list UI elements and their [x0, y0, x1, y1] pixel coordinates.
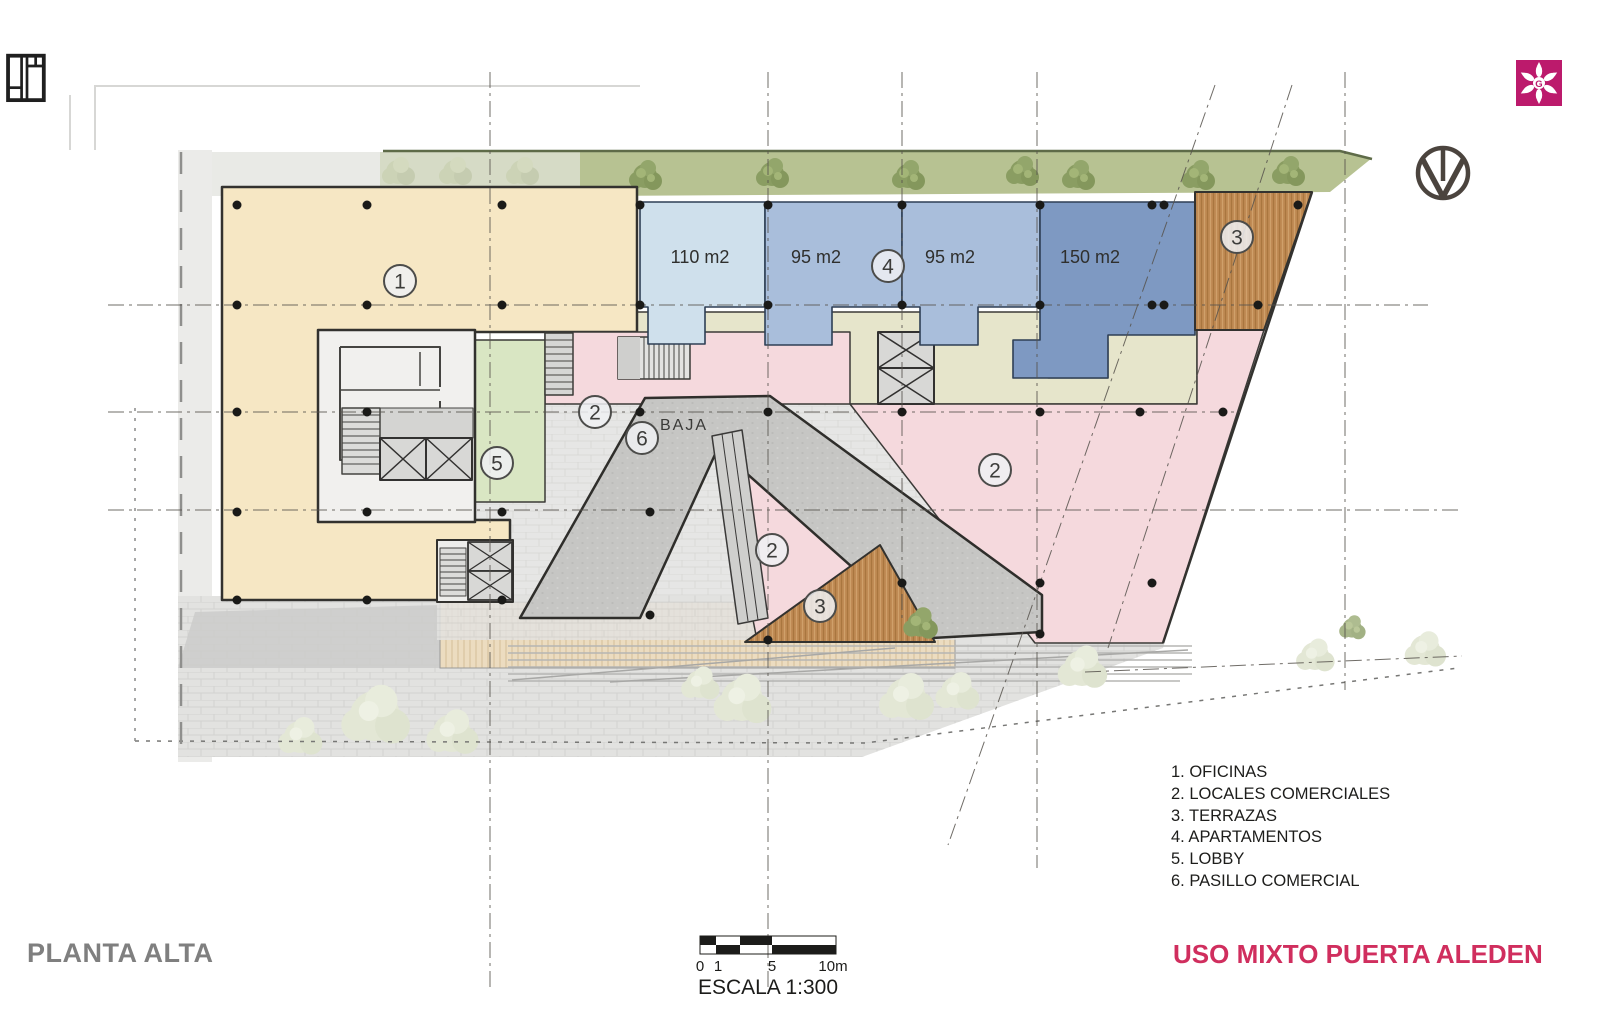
svg-text:1: 1 [394, 271, 406, 294]
marker-locales-right: 2 [979, 454, 1011, 486]
marker-pasillo: 6 [626, 422, 658, 454]
legend-item-apartamentos: 4. APARTAMENTOS [1171, 827, 1390, 849]
svg-text:6: 6 [636, 428, 648, 451]
sheet-title: PLANTA ALTA [27, 938, 213, 969]
legend-item-oficinas: 1. OFICINAS [1171, 762, 1390, 784]
scale-bar: 0 1 5 10m ESCALA 1:300 [685, 926, 865, 1000]
scale-tick-0: 0 [696, 958, 704, 975]
svg-text:3: 3 [814, 596, 826, 619]
svg-text:2: 2 [989, 460, 1001, 483]
unit-area-150: 150 m2 [1060, 247, 1120, 267]
marker-apartamentos: 4 [872, 250, 904, 282]
scale-tick-5: 5 [768, 958, 776, 975]
legend-item-pasillo: 6. PASILLO COMERCIAL [1171, 871, 1390, 893]
legend-item-locales: 2. LOCALES COMERCIALES [1171, 784, 1390, 806]
svg-text:2: 2 [589, 402, 601, 425]
svg-text:2: 2 [766, 540, 778, 563]
marker-locales-mid: 2 [756, 534, 788, 566]
scale-label: ESCALA 1:300 [698, 976, 838, 999]
svg-text:5: 5 [491, 453, 503, 476]
marker-terraza-top: 3 [1221, 221, 1253, 253]
project-title: USO MIXTO PUERTA ALEDEN [1173, 939, 1543, 970]
scale-tick-10: 10m [818, 958, 847, 975]
zone-terraza-top [1195, 192, 1312, 330]
marker-terraza-bottom: 3 [804, 590, 836, 622]
svg-text:4: 4 [882, 256, 894, 279]
unit-area-110: 110 m2 [671, 247, 730, 267]
legend-item-terrazas: 3. TERRAZAS [1171, 806, 1390, 828]
baja-label: BAJA [660, 417, 708, 434]
legend-item-lobby: 5. LOBBY [1171, 849, 1390, 871]
marker-locales-left: 2 [579, 396, 611, 428]
scale-bar-blocks [700, 936, 836, 954]
scale-tick-1: 1 [714, 958, 722, 975]
stair-core-secondary [437, 540, 513, 602]
unit-area-95a: 95 m2 [791, 247, 841, 267]
legend: 1. OFICINAS 2. LOCALES COMERCIALES 3. TE… [1171, 762, 1390, 893]
marker-lobby: 5 [481, 447, 513, 479]
scale-ticks: 0 1 5 10m [696, 958, 848, 975]
unit-area-95b: 95 m2 [925, 247, 975, 267]
marker-oficinas: 1 [384, 265, 416, 297]
svg-text:3: 3 [1231, 227, 1243, 250]
stair-core-main [318, 330, 475, 522]
stair-lobby-side [545, 333, 573, 395]
plan-sheet: G [0, 0, 1600, 1035]
